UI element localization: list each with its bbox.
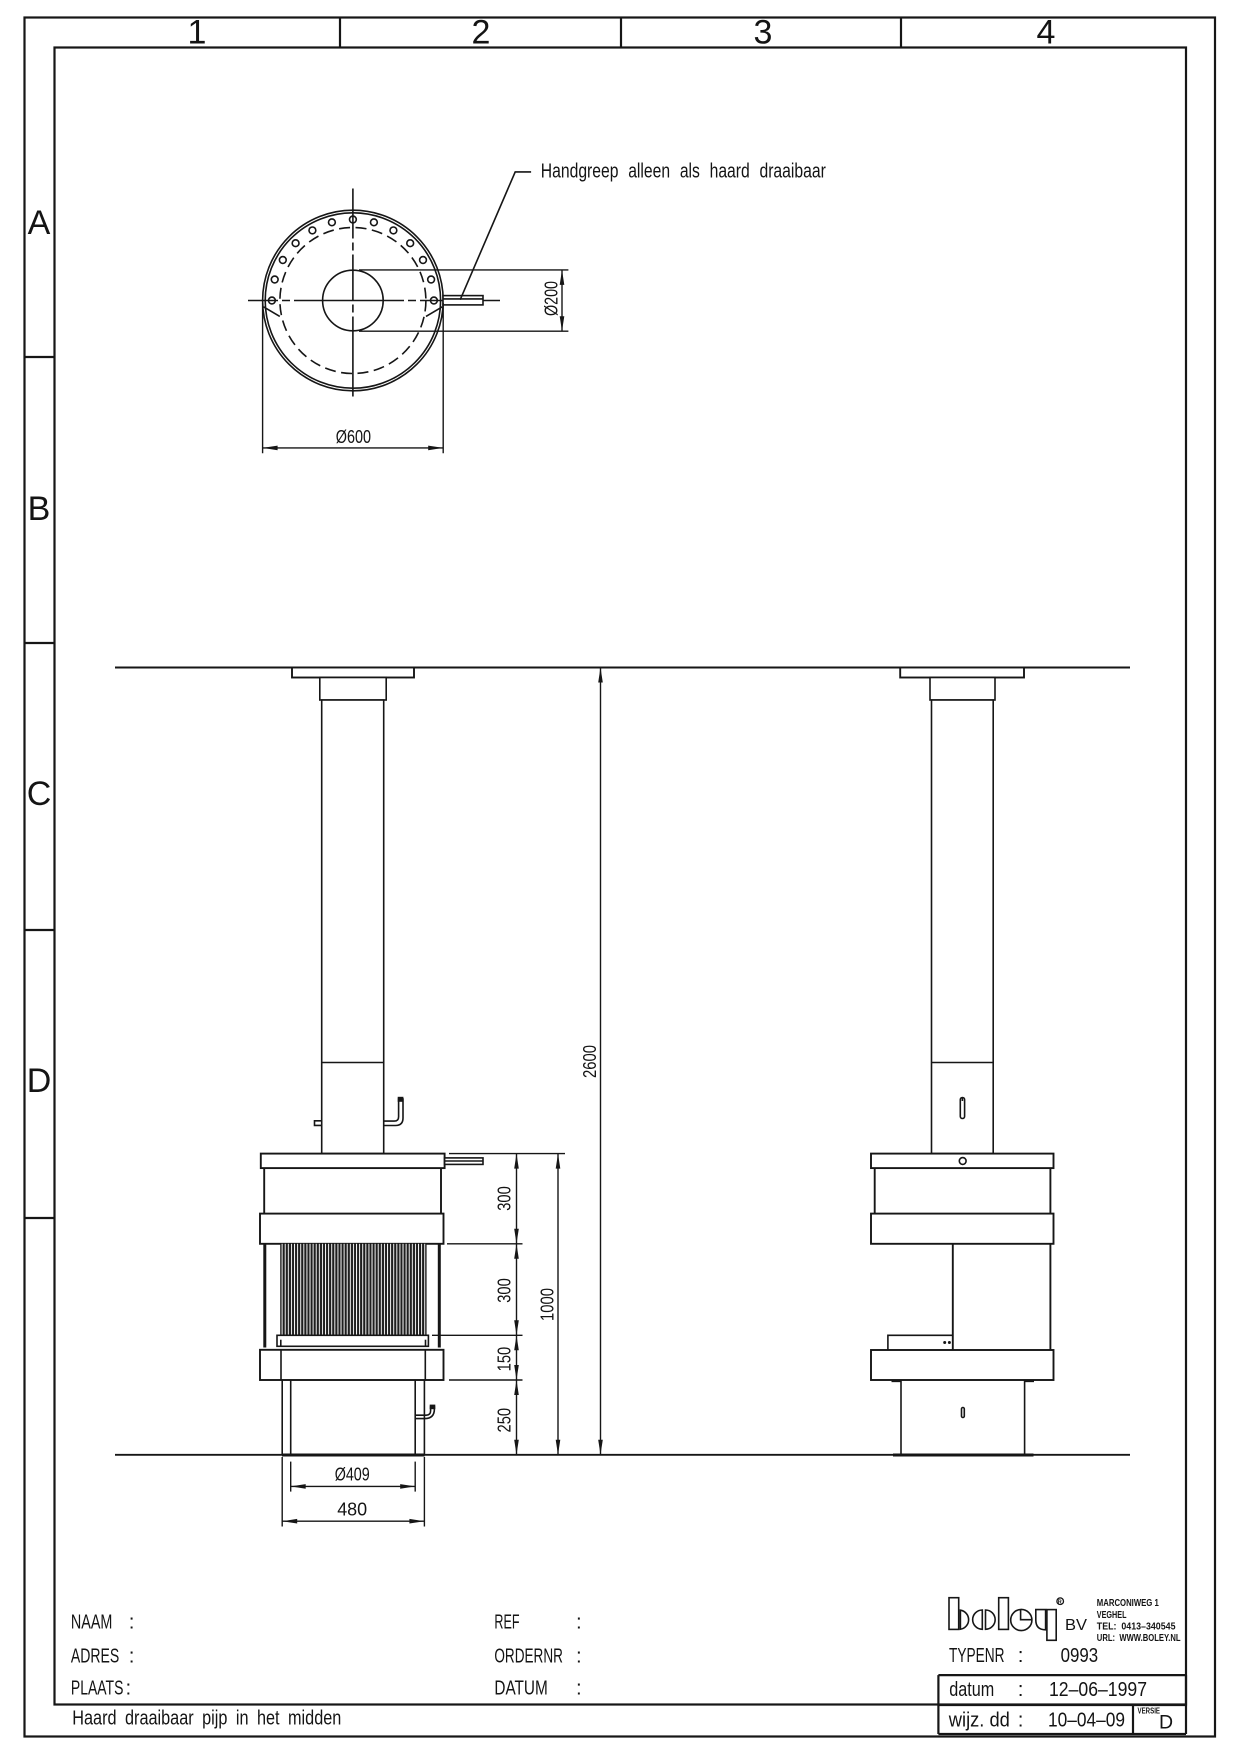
- svg-text::: :: [129, 1645, 135, 1668]
- svg-text:R: R: [1058, 1599, 1062, 1605]
- svg-text:TYPENR: TYPENR: [949, 1644, 1005, 1667]
- svg-text:TEL: 0413–340545: TEL: 0413–340545: [1097, 1621, 1176, 1633]
- svg-text:D: D: [27, 1062, 52, 1100]
- svg-text:wijz. dd: wijz. dd: [948, 1709, 1010, 1732]
- svg-text:D: D: [1159, 1711, 1173, 1733]
- svg-text:480: 480: [337, 1499, 367, 1519]
- svg-text:3: 3: [754, 14, 773, 52]
- svg-text:Handgreep alleen als haard dra: Handgreep alleen als haard draaibaar: [541, 160, 826, 183]
- svg-text:250: 250: [494, 1408, 514, 1433]
- svg-text:2600: 2600: [580, 1045, 600, 1078]
- svg-text:12–06–1997: 12–06–1997: [1049, 1678, 1147, 1701]
- svg-text::: :: [1018, 1709, 1024, 1732]
- svg-text:B: B: [28, 490, 51, 528]
- svg-text:REF: REF: [494, 1611, 519, 1634]
- svg-text:2: 2: [472, 14, 491, 52]
- svg-text:Haard draaibaar pijp in het mi: Haard draaibaar pijp in het midden: [72, 1707, 341, 1730]
- svg-text::: :: [576, 1611, 582, 1634]
- svg-text:Ø200: Ø200: [542, 281, 562, 316]
- svg-text:VERSIE: VERSIE: [1138, 1707, 1161, 1716]
- svg-text:Ø409: Ø409: [335, 1465, 370, 1485]
- svg-text:1: 1: [188, 14, 207, 52]
- svg-text::: :: [576, 1676, 582, 1699]
- svg-text:PLAATS: PLAATS: [71, 1676, 124, 1699]
- svg-text:BV: BV: [1065, 1617, 1087, 1634]
- svg-text:NAAM: NAAM: [71, 1611, 113, 1634]
- svg-text:150: 150: [494, 1347, 514, 1372]
- svg-text:C: C: [27, 775, 52, 813]
- svg-text:VEGHEL: VEGHEL: [1097, 1609, 1127, 1621]
- svg-text::: :: [129, 1611, 135, 1634]
- svg-text:10–04–09: 10–04–09: [1048, 1709, 1125, 1732]
- svg-text:0993: 0993: [1061, 1644, 1099, 1667]
- svg-text:datum: datum: [949, 1678, 994, 1701]
- svg-text:DATUM: DATUM: [494, 1676, 547, 1699]
- svg-text:Ø600: Ø600: [336, 427, 371, 447]
- svg-text:ORDERNR: ORDERNR: [494, 1645, 563, 1668]
- svg-text::: :: [1018, 1644, 1024, 1667]
- svg-text::: :: [576, 1645, 582, 1668]
- svg-text:ADRES: ADRES: [71, 1645, 119, 1668]
- svg-text:MARCONIWEG 1: MARCONIWEG 1: [1097, 1597, 1159, 1609]
- svg-text:URL: WWW.BOLEY.NL: URL: WWW.BOLEY.NL: [1097, 1632, 1181, 1644]
- svg-text:1000: 1000: [538, 1288, 558, 1321]
- svg-text:4: 4: [1037, 14, 1056, 52]
- svg-text:A: A: [28, 204, 51, 242]
- svg-text:300: 300: [494, 1278, 514, 1303]
- svg-text:300: 300: [494, 1186, 514, 1211]
- svg-text::: :: [126, 1676, 132, 1699]
- svg-text::: :: [1018, 1678, 1024, 1701]
